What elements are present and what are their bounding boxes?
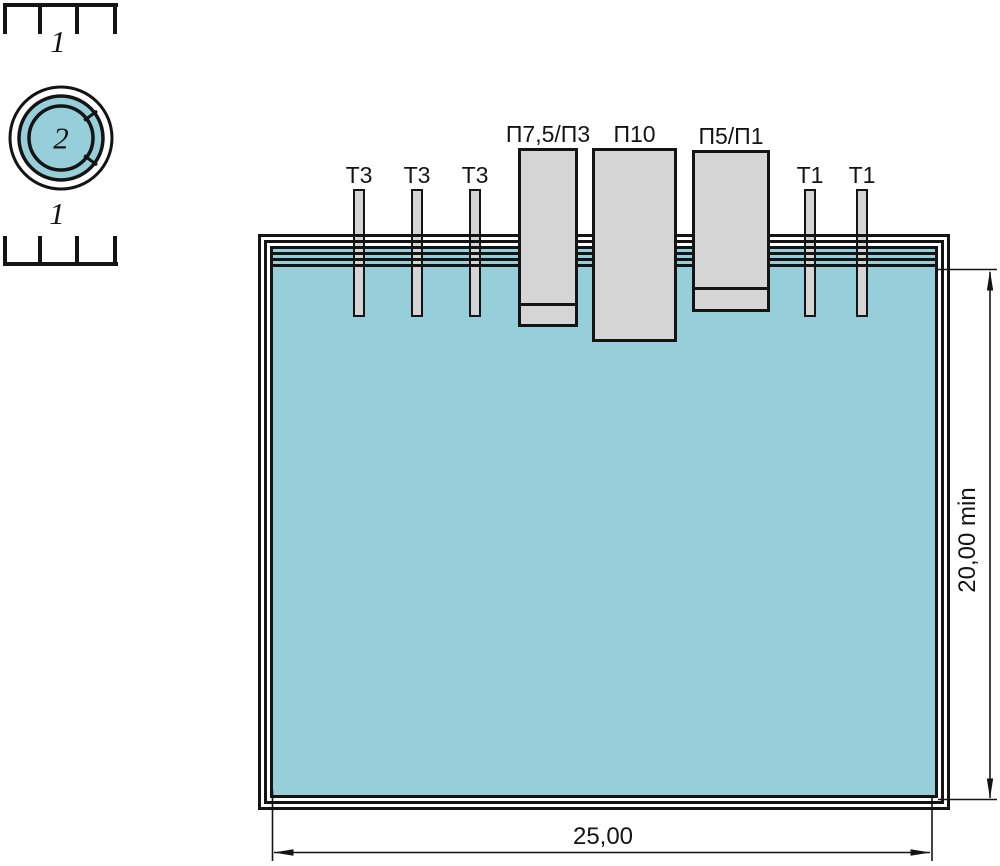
dim-arrow-left [274, 849, 294, 856]
probe-label-p10: П10 [592, 121, 677, 147]
probe-block-p5 [692, 150, 770, 312]
probe-block-divider-line [695, 287, 767, 290]
probe-label-p7-5: П7,5/П3 [496, 121, 600, 147]
callout-number-top: 1 [38, 27, 78, 57]
dim-width-value: 25,00 [548, 823, 658, 851]
probe-block-p10 [592, 148, 677, 342]
callout-number-circle: 2 [53, 121, 69, 156]
capillary-section-icon: 2 [4, 81, 119, 196]
dim-arrow-up [987, 271, 993, 291]
probe-block-divider-line [521, 303, 575, 306]
probe-label-t1-2: Т1 [840, 162, 884, 188]
dim-arrow-down [987, 779, 993, 799]
dim-depth-value: 20,00 min [954, 470, 982, 610]
probe-label-t3-3: Т3 [453, 162, 497, 188]
probe-label-t3-1: Т3 [337, 162, 381, 188]
probe-label-t3-2: Т3 [395, 162, 439, 188]
dim-arrow-right [911, 849, 931, 856]
technical-drawing: 1 2 1 Т3 Т3 Т3 П7,5/П3 П10 П5/П1 [0, 0, 1000, 866]
probe-label-p5: П5/П1 [689, 123, 773, 149]
probe-label-t1-1: Т1 [788, 162, 832, 188]
comb-ruler-bottom-icon [0, 236, 125, 268]
callout-number-bottom: 1 [37, 199, 77, 229]
probe-block-p7-5 [518, 148, 578, 327]
